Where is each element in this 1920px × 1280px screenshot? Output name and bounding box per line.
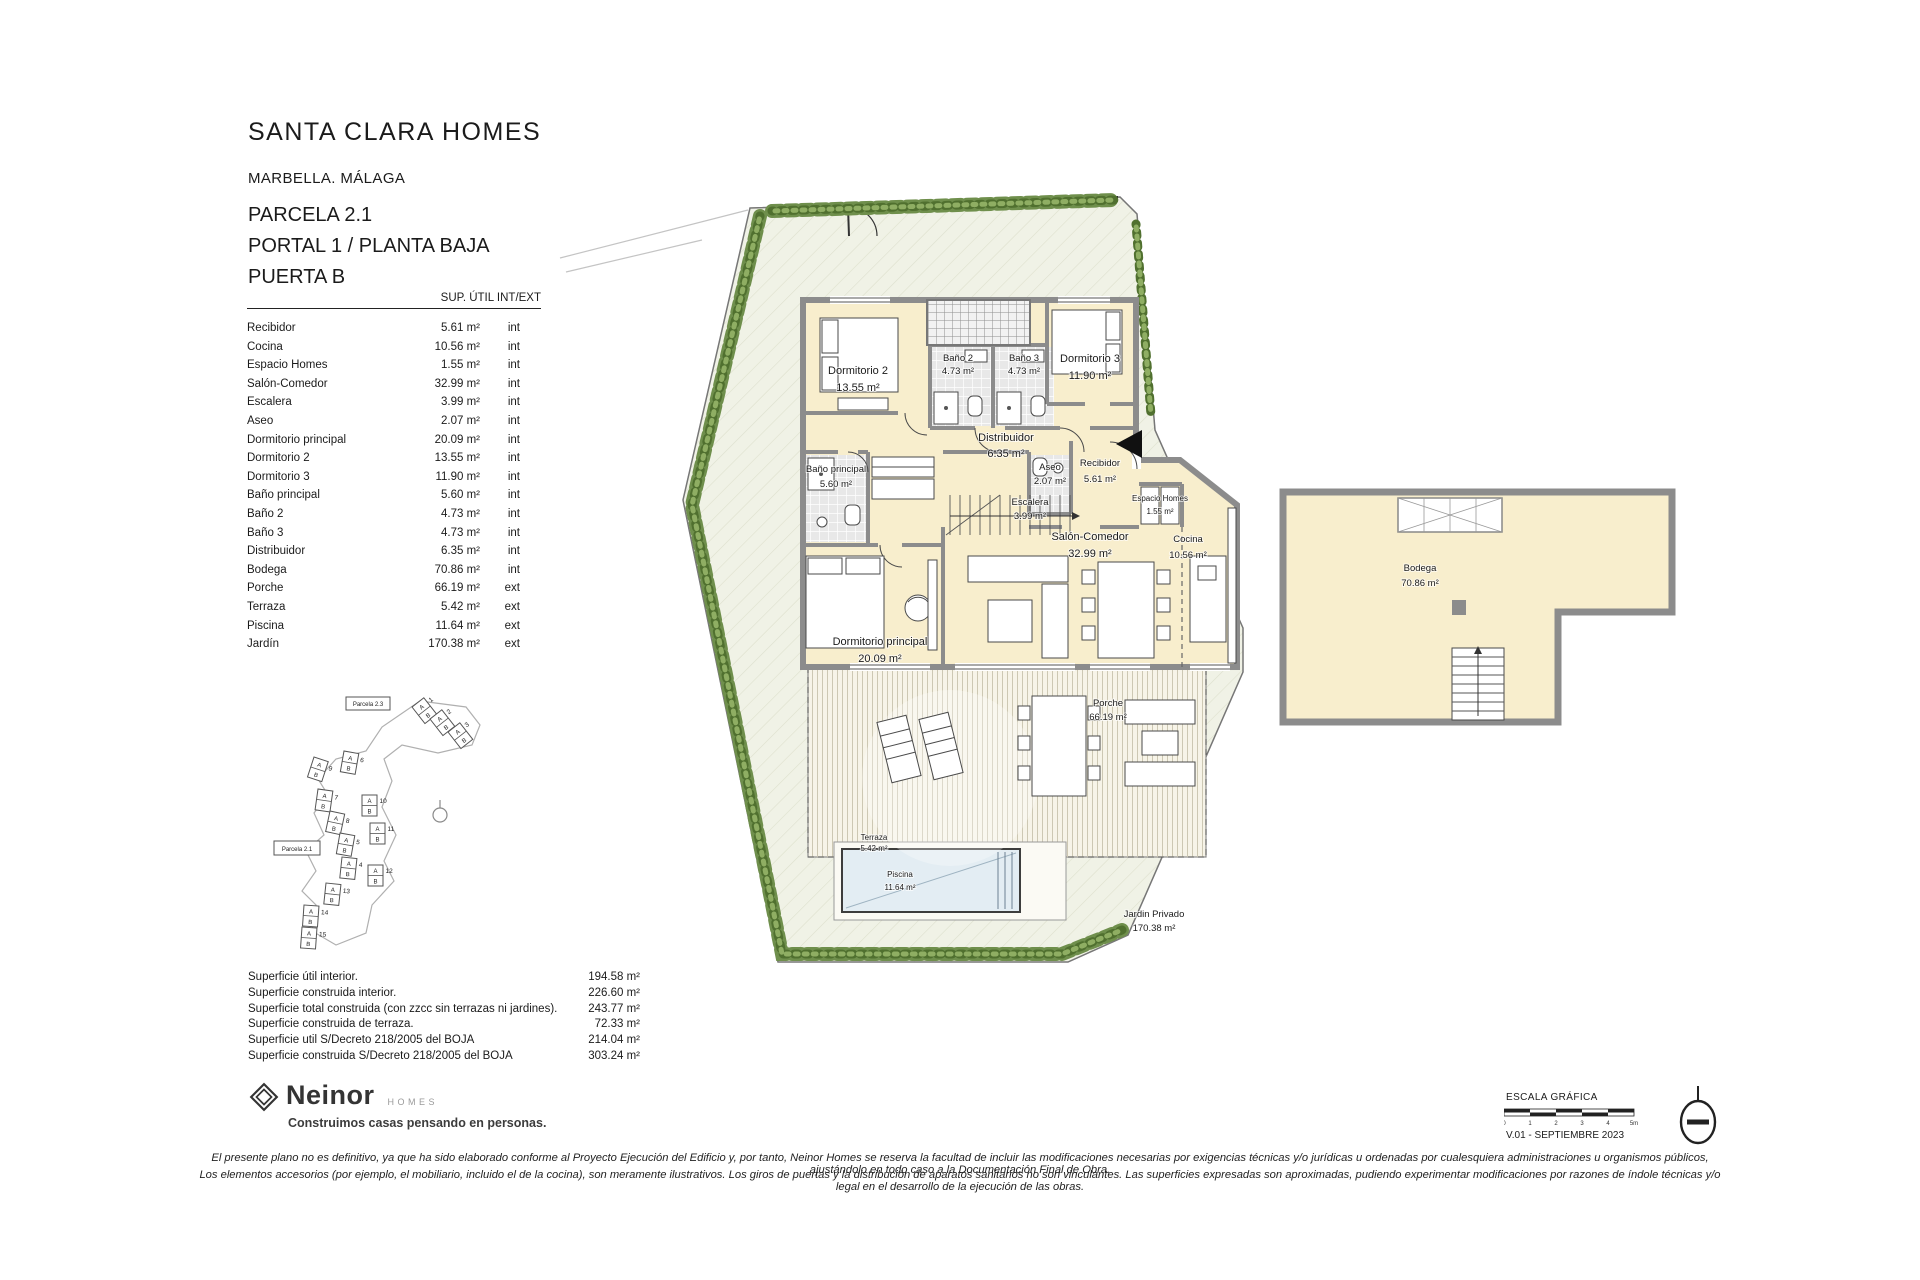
version-label: V.01 - SEPTIEMBRE 2023 bbox=[1506, 1130, 1624, 1141]
summary-row: Superficie construida de terraza.72.33 m… bbox=[248, 1017, 640, 1033]
scale-tick: 1 bbox=[1528, 1121, 1532, 1127]
rooms-table: Recibidor5.61 m²intCocina10.56 m²intEspa… bbox=[247, 319, 520, 654]
summary-row: Superficie total construida (con zzcc si… bbox=[248, 1002, 640, 1018]
svg-text:1.55 m²: 1.55 m² bbox=[1146, 507, 1173, 516]
room-type: ext bbox=[480, 617, 520, 636]
room-type: int bbox=[480, 468, 520, 487]
label-bano-principal: Baño principal bbox=[806, 464, 866, 475]
site-unit: AB12 bbox=[368, 865, 393, 886]
room-type: int bbox=[480, 356, 520, 375]
site-unit: AB9 bbox=[308, 757, 335, 784]
room-type: int bbox=[480, 375, 520, 394]
svg-text:A: A bbox=[309, 909, 313, 915]
room-area: 10.56 m² bbox=[394, 338, 480, 357]
summary-value: 303.24 m² bbox=[566, 1049, 640, 1065]
room-area: 5.42 m² bbox=[394, 598, 480, 617]
logo-tagline: Construimos casas pensando en personas. bbox=[288, 1116, 546, 1130]
summary-row: Superficie util S/Decreto 218/2005 del B… bbox=[248, 1033, 640, 1049]
label-recibidor: Recibidor bbox=[1080, 458, 1120, 469]
table-row: Cocina10.56 m²int bbox=[247, 338, 520, 357]
room-area: 13.55 m² bbox=[394, 449, 480, 468]
svg-text:2: 2 bbox=[446, 708, 453, 716]
site-unit: AB8 bbox=[326, 811, 351, 836]
parcel-title: PARCELA 2.1 bbox=[248, 204, 372, 227]
svg-text:3.99 m²: 3.99 m² bbox=[1014, 511, 1046, 522]
room-type: int bbox=[480, 561, 520, 580]
svg-text:B: B bbox=[375, 838, 379, 844]
watermark bbox=[862, 690, 1038, 866]
site-unit: AB15 bbox=[301, 927, 328, 950]
scale-tick: 5m bbox=[1630, 1121, 1638, 1127]
summary-value: 214.04 m² bbox=[566, 1033, 640, 1049]
svg-text:6.35 m²: 6.35 m² bbox=[987, 448, 1025, 460]
room-type: int bbox=[480, 431, 520, 450]
room-type: int bbox=[480, 486, 520, 505]
svg-text:13: 13 bbox=[342, 888, 350, 896]
svg-text:B: B bbox=[373, 880, 377, 886]
rooms-table-header: SUP. ÚTIL INT/EXT bbox=[247, 292, 541, 309]
room-type: ext bbox=[480, 598, 520, 617]
room-type: int bbox=[480, 505, 520, 524]
svg-text:13.55 m²: 13.55 m² bbox=[836, 382, 880, 394]
room-name: Jardín bbox=[247, 635, 394, 654]
room-name: Escalera bbox=[247, 393, 394, 412]
room-name: Terraza bbox=[247, 598, 394, 617]
svg-text:A: A bbox=[330, 888, 335, 894]
summary-label: Superficie total construida (con zzcc si… bbox=[248, 1002, 566, 1018]
logo-name: Neinor bbox=[286, 1082, 375, 1108]
summary-label: Superficie construida S/Decreto 218/2005… bbox=[248, 1049, 566, 1065]
label-espacio-homes: Espacio Homes bbox=[1132, 494, 1188, 503]
portal-title: PORTAL 1 / PLANTA BAJA bbox=[248, 235, 490, 258]
room-area: 2.07 m² bbox=[394, 412, 480, 431]
label-bano2: Baño 2 bbox=[943, 353, 973, 364]
room-type: int bbox=[480, 319, 520, 338]
svg-text:10.56 m²: 10.56 m² bbox=[1169, 550, 1207, 561]
room-area: 32.99 m² bbox=[394, 375, 480, 394]
svg-text:12: 12 bbox=[386, 868, 394, 875]
svg-text:11.90 m²: 11.90 m² bbox=[1069, 370, 1112, 382]
label-piscina: Piscina bbox=[887, 870, 913, 879]
svg-text:5.60 m²: 5.60 m² bbox=[820, 479, 852, 490]
svg-text:8: 8 bbox=[345, 818, 350, 826]
summary-label: Superficie útil interior. bbox=[248, 970, 566, 986]
room-area: 20.09 m² bbox=[394, 431, 480, 450]
summary-value: 226.60 m² bbox=[566, 986, 640, 1002]
table-row: Piscina11.64 m²ext bbox=[247, 617, 520, 636]
label-terraza: Terraza bbox=[861, 833, 888, 842]
svg-text:10: 10 bbox=[380, 798, 388, 805]
room-area: 3.99 m² bbox=[394, 393, 480, 412]
table-row: Dormitorio 213.55 m²int bbox=[247, 449, 520, 468]
label-bano3: Baño 3 bbox=[1009, 353, 1039, 364]
svg-text:A: A bbox=[373, 869, 377, 875]
label-dormitorio2: Dormitorio 2 bbox=[828, 365, 888, 377]
table-row: Aseo2.07 m²int bbox=[247, 412, 520, 431]
label-distribuidor: Distribuidor bbox=[978, 432, 1034, 444]
room-type: int bbox=[480, 524, 520, 543]
site-unit: AB13 bbox=[324, 883, 351, 907]
room-type: int bbox=[480, 449, 520, 468]
room-name: Cocina bbox=[247, 338, 394, 357]
svg-text:9: 9 bbox=[328, 765, 334, 773]
room-name: Dormitorio 3 bbox=[247, 468, 394, 487]
svg-text:4.73 m²: 4.73 m² bbox=[1008, 366, 1040, 377]
page-title: SANTA CLARA HOMES bbox=[248, 118, 541, 147]
table-row: Distribuidor6.35 m²int bbox=[247, 542, 520, 561]
svg-text:6: 6 bbox=[359, 757, 364, 765]
plan-sheet: Dormitorio 2 13.55 m² Baño 2 4.73 m² Bañ… bbox=[0, 0, 1920, 1280]
door-title: PUERTA B bbox=[248, 266, 345, 289]
scale-tick: 2 bbox=[1554, 1121, 1558, 1127]
scale-tick: 0 bbox=[1504, 1121, 1506, 1127]
svg-text:66.19 m²: 66.19 m² bbox=[1089, 712, 1127, 723]
svg-text:4: 4 bbox=[358, 862, 363, 869]
svg-text:A: A bbox=[322, 794, 327, 801]
table-row: Baño 24.73 m²int bbox=[247, 505, 520, 524]
room-name: Espacio Homes bbox=[247, 356, 394, 375]
room-area: 11.64 m² bbox=[394, 617, 480, 636]
svg-text:B: B bbox=[321, 804, 326, 811]
table-row: Porche66.19 m²ext bbox=[247, 579, 520, 598]
svg-text:A: A bbox=[346, 862, 351, 868]
summary-row: Superficie construida S/Decreto 218/2005… bbox=[248, 1049, 640, 1065]
svg-text:B: B bbox=[367, 810, 371, 816]
room-name: Bodega bbox=[247, 561, 394, 580]
table-row: Jardín170.38 m²ext bbox=[247, 635, 520, 654]
room-area: 4.73 m² bbox=[394, 524, 480, 543]
svg-text:7: 7 bbox=[334, 794, 339, 801]
table-row: Bodega70.86 m²int bbox=[247, 561, 520, 580]
room-name: Salón-Comedor bbox=[247, 375, 394, 394]
site-unit: AB10 bbox=[362, 795, 387, 816]
table-row: Terraza5.42 m²ext bbox=[247, 598, 520, 617]
scale-tick: 3 bbox=[1580, 1121, 1584, 1127]
svg-text:15: 15 bbox=[319, 931, 327, 939]
room-type: ext bbox=[480, 635, 520, 654]
room-type: int bbox=[480, 393, 520, 412]
label-dormitorio-principal: Dormitorio principal bbox=[833, 636, 928, 648]
label-aseo: Aseo bbox=[1039, 462, 1061, 473]
parcel-2-3-label: Parcela 2.3 bbox=[353, 702, 384, 708]
surface-summary: Superficie útil interior.194.58 m²Superf… bbox=[248, 970, 640, 1065]
table-row: Escalera3.99 m²int bbox=[247, 393, 520, 412]
site-compass-icon bbox=[433, 808, 447, 822]
svg-text:4.73 m²: 4.73 m² bbox=[942, 366, 974, 377]
room-area: 1.55 m² bbox=[394, 356, 480, 375]
room-area: 5.60 m² bbox=[394, 486, 480, 505]
summary-value: 194.58 m² bbox=[566, 970, 640, 986]
table-row: Baño 34.73 m²int bbox=[247, 524, 520, 543]
label-dormitorio3: Dormitorio 3 bbox=[1060, 353, 1120, 365]
room-name: Distribuidor bbox=[247, 542, 394, 561]
site-key-plan: Parcela 2.3 Parcela 2.1 AB1AB2AB3AB9AB6A… bbox=[270, 695, 560, 995]
svg-text:B: B bbox=[345, 872, 350, 878]
summary-label: Superficie construida de terraza. bbox=[248, 1017, 566, 1033]
site-unit: AB14 bbox=[303, 905, 330, 928]
svg-text:11.64 m²: 11.64 m² bbox=[885, 883, 916, 892]
room-area: 70.86 m² bbox=[394, 561, 480, 580]
room-name: Porche bbox=[247, 579, 394, 598]
room-type: int bbox=[480, 542, 520, 561]
room-area: 6.35 m² bbox=[394, 542, 480, 561]
summary-row: Superficie construida interior.226.60 m² bbox=[248, 986, 640, 1002]
svg-text:5.42 m²: 5.42 m² bbox=[860, 844, 887, 853]
room-name: Baño 3 bbox=[247, 524, 394, 543]
room-name: Aseo bbox=[247, 412, 394, 431]
room-type: int bbox=[480, 412, 520, 431]
room-area: 170.38 m² bbox=[394, 635, 480, 654]
svg-text:20.09 m²: 20.09 m² bbox=[858, 653, 902, 665]
scale-tick: 4 bbox=[1606, 1121, 1610, 1127]
svg-text:5.61 m²: 5.61 m² bbox=[1084, 474, 1116, 485]
label-bodega: Bodega bbox=[1404, 563, 1437, 574]
site-unit: AB11 bbox=[370, 823, 395, 844]
table-row: Espacio Homes1.55 m²int bbox=[247, 356, 520, 375]
svg-text:2.07 m²: 2.07 m² bbox=[1034, 476, 1066, 487]
label-salon: Salón-Comedor bbox=[1051, 531, 1128, 543]
svg-text:70.86 m²: 70.86 m² bbox=[1401, 578, 1439, 589]
room-type: ext bbox=[480, 579, 520, 598]
site-unit: AB6 bbox=[340, 751, 365, 775]
room-name: Dormitorio 2 bbox=[247, 449, 394, 468]
svg-text:B: B bbox=[306, 942, 310, 948]
site-unit: AB7 bbox=[315, 789, 339, 813]
table-row: Dormitorio 311.90 m²int bbox=[247, 468, 520, 487]
room-name: Piscina bbox=[247, 617, 394, 636]
svg-text:14: 14 bbox=[321, 909, 329, 917]
room-area: 4.73 m² bbox=[394, 505, 480, 524]
label-jardin: Jardin Privado bbox=[1124, 909, 1185, 920]
summary-value: 243.77 m² bbox=[566, 1002, 640, 1018]
north-arrow-icon bbox=[1674, 1084, 1722, 1146]
label-porche: Porche bbox=[1093, 698, 1123, 709]
room-area: 11.90 m² bbox=[394, 468, 480, 487]
svg-text:5: 5 bbox=[355, 839, 360, 847]
svg-text:B: B bbox=[308, 920, 312, 926]
scale-label: ESCALA GRÁFICA bbox=[1506, 1092, 1598, 1103]
room-name: Recibidor bbox=[247, 319, 394, 338]
table-row: Recibidor5.61 m²int bbox=[247, 319, 520, 338]
summary-label: Superficie util S/Decreto 218/2005 del B… bbox=[248, 1033, 566, 1049]
room-area: 5.61 m² bbox=[394, 319, 480, 338]
svg-text:170.38 m²: 170.38 m² bbox=[1133, 923, 1176, 934]
room-name: Dormitorio principal bbox=[247, 431, 394, 450]
neighbour-lines bbox=[560, 210, 748, 272]
neinor-logo-icon bbox=[249, 1082, 279, 1112]
label-cocina: Cocina bbox=[1173, 534, 1203, 545]
room-name: Baño 2 bbox=[247, 505, 394, 524]
parcel-2-1-label: Parcela 2.1 bbox=[282, 847, 313, 853]
neinor-logo: Neinor HOMES bbox=[249, 1082, 438, 1112]
page-location: MARBELLA. MÁLAGA bbox=[248, 170, 405, 187]
svg-text:A: A bbox=[307, 931, 311, 937]
label-escalera: Escalera bbox=[1012, 497, 1050, 508]
scale-bar: 012345m bbox=[1504, 1104, 1674, 1130]
table-row: Dormitorio principal20.09 m²int bbox=[247, 431, 520, 450]
disclaimer-line2: Los elementos accesorios (por ejemplo, e… bbox=[195, 1169, 1725, 1193]
table-row: Baño principal5.60 m²int bbox=[247, 486, 520, 505]
bodega-plan bbox=[1283, 492, 1672, 722]
scale-ticks: 012345m bbox=[1504, 1121, 1638, 1127]
svg-text:A: A bbox=[367, 799, 371, 805]
svg-text:32.99 m²: 32.99 m² bbox=[1068, 548, 1112, 560]
site-unit: AB5 bbox=[336, 833, 361, 857]
summary-label: Superficie construida interior. bbox=[248, 986, 566, 1002]
site-unit: AB4 bbox=[340, 857, 364, 880]
room-area: 66.19 m² bbox=[394, 579, 480, 598]
table-row: Salón-Comedor32.99 m²int bbox=[247, 375, 520, 394]
room-type: int bbox=[480, 338, 520, 357]
logo-sub: HOMES bbox=[388, 1092, 439, 1112]
summary-value: 72.33 m² bbox=[566, 1017, 640, 1033]
svg-text:3: 3 bbox=[464, 721, 471, 729]
svg-text:11: 11 bbox=[388, 826, 395, 833]
room-name: Baño principal bbox=[247, 486, 394, 505]
svg-text:A: A bbox=[375, 827, 379, 833]
svg-text:B: B bbox=[329, 898, 334, 904]
summary-row: Superficie útil interior.194.58 m² bbox=[248, 970, 640, 986]
